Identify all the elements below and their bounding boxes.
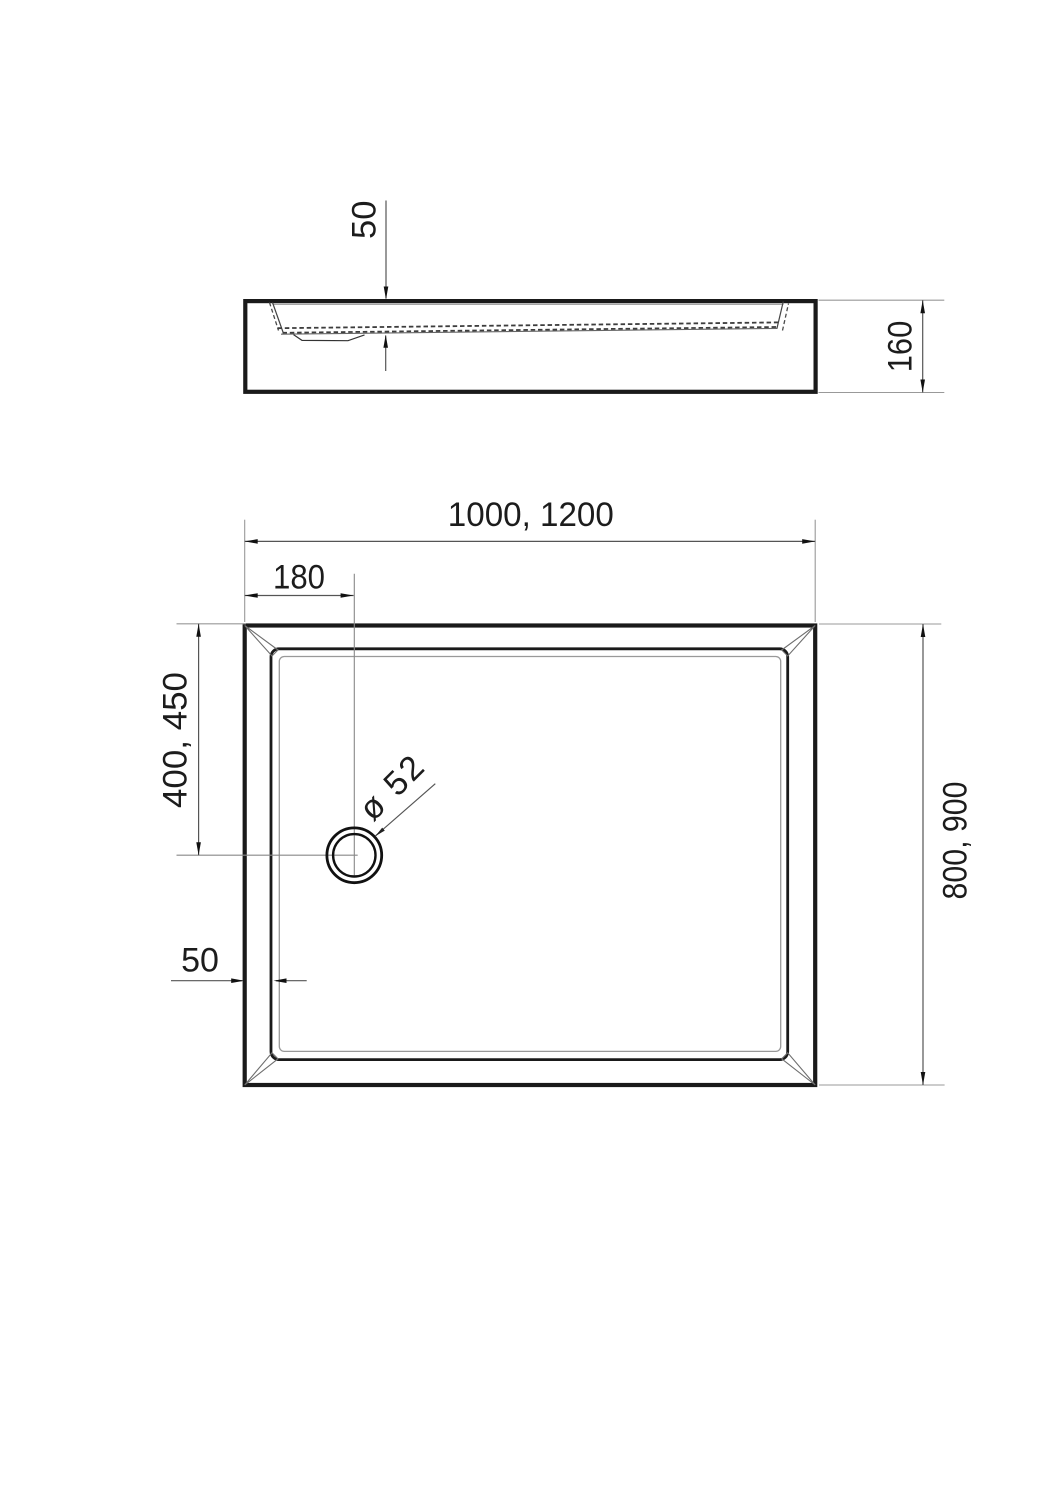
svg-text:800, 900: 800, 900 bbox=[937, 782, 975, 900]
svg-text:1000, 1200: 1000, 1200 bbox=[448, 496, 614, 534]
svg-text:50: 50 bbox=[346, 200, 384, 239]
svg-text:400, 450: 400, 450 bbox=[157, 672, 195, 808]
svg-text:160: 160 bbox=[882, 321, 920, 373]
svg-text:50: 50 bbox=[181, 941, 219, 979]
svg-text:180: 180 bbox=[273, 559, 325, 597]
